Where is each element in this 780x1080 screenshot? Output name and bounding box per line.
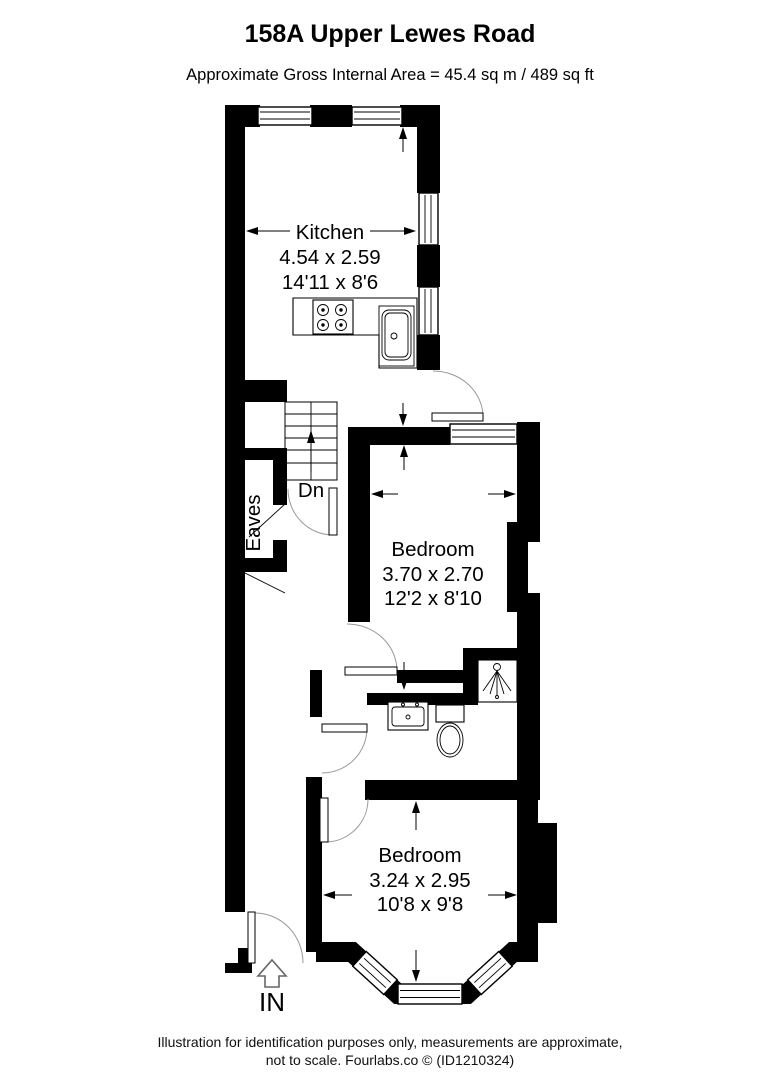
stairs: Dn <box>285 402 337 535</box>
bedroom2-metric: 3.24 x 2.95 <box>369 869 470 892</box>
entrance-label: IN <box>259 987 285 1017</box>
footer: Illustration for identification purposes… <box>157 1034 622 1068</box>
kitchen-window-right-1 <box>419 193 438 245</box>
entrance-arrow-icon <box>258 960 286 987</box>
kitchen-imperial: 14'11 x 8'6 <box>282 271 378 294</box>
shower-icon <box>478 660 517 702</box>
hob-icon <box>313 300 353 334</box>
bay-window-left <box>353 951 398 994</box>
area-subtitle: Approximate Gross Internal Area = 45.4 s… <box>186 66 594 84</box>
kitchen-window-right-2 <box>419 287 438 335</box>
bedroom1-metric: 3.70 x 2.70 <box>382 563 483 586</box>
room-bedroom-2: Bedroom 3.24 x 2.95 10'8 x 9'8 <box>306 777 557 1004</box>
header: 158A Upper Lewes Road Approximate Gross … <box>186 20 594 84</box>
kitchen-label: Kitchen <box>296 221 364 244</box>
entrance-door <box>248 912 303 963</box>
floorplan-canvas: 158A Upper Lewes Road Approximate Gross … <box>0 0 780 1080</box>
disclaimer-line-2: not to scale. Fourlabs.co © (ID1210324) <box>266 1052 514 1068</box>
kitchen-window-top-2 <box>352 107 402 125</box>
kitchen-metric: 4.54 x 2.59 <box>279 246 380 269</box>
bedroom2-door <box>320 798 368 842</box>
bedroom1-label: Bedroom <box>391 538 474 561</box>
entrance: IN <box>248 912 303 1017</box>
bay-window-bottom <box>398 984 462 1004</box>
disclaimer-line-1: Illustration for identification purposes… <box>157 1034 622 1050</box>
toilet-icon <box>436 705 464 757</box>
bathroom-sink-icon <box>388 702 428 730</box>
stairs-down-label: Dn <box>298 479 324 502</box>
room-bedroom-1: Bedroom 3.70 x 2.70 12'2 x 8'10 <box>310 422 540 800</box>
bedroom2-label: Bedroom <box>378 844 461 867</box>
bedroom1-window <box>450 424 517 444</box>
bathroom-door <box>322 724 367 773</box>
floorplan-page: 158A Upper Lewes Road Approximate Gross … <box>0 0 780 1080</box>
kitchen-window-top-1 <box>258 107 312 125</box>
bedroom1-imperial: 12'2 x 8'10 <box>384 587 482 610</box>
bedroom1-door <box>345 624 397 675</box>
kitchen-door <box>432 371 483 421</box>
bedroom2-imperial: 10'8 x 9'8 <box>377 893 463 916</box>
kitchen-counter <box>293 298 417 368</box>
eaves-label: Eaves <box>242 495 265 552</box>
bay-window-right <box>468 951 513 994</box>
room-kitchen: Kitchen 4.54 x 2.59 14'11 x 8'6 <box>225 105 483 426</box>
page-title: 158A Upper Lewes Road <box>245 20 536 48</box>
